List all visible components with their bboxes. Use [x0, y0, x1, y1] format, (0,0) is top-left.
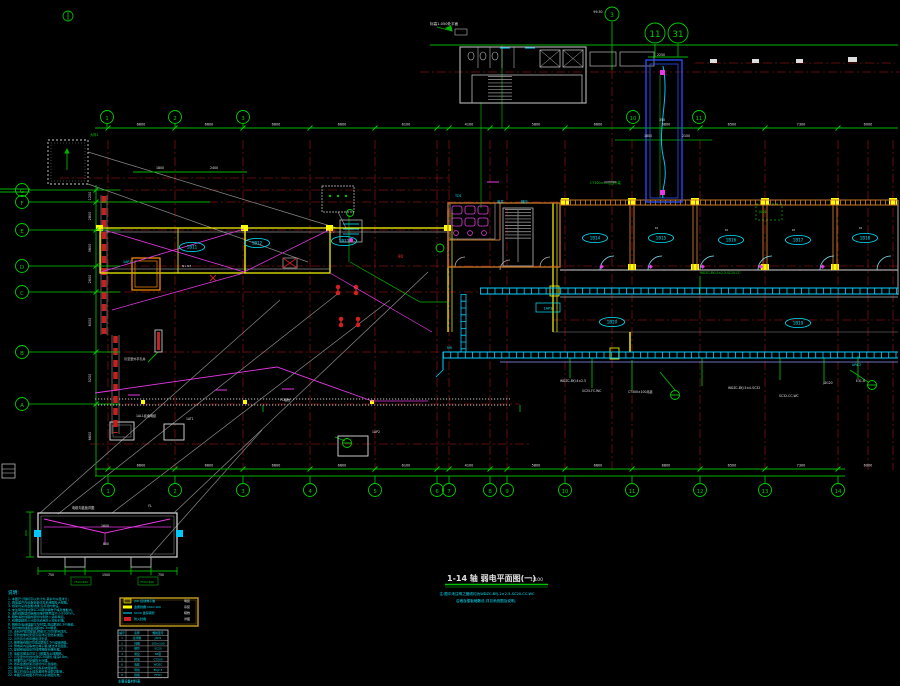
label: 规格型号 — [152, 631, 163, 635]
label: 750 — [158, 573, 164, 577]
label: 11 — [629, 489, 636, 495]
label: 5 — [373, 489, 376, 495]
label: 1800 — [644, 134, 652, 138]
label: 750×300 — [140, 580, 154, 584]
label: 主要设备材料表 — [118, 679, 141, 684]
legend-symbol — [124, 599, 131, 603]
label: 4 — [121, 652, 123, 656]
label: TD1 — [454, 194, 462, 198]
section-cut-symbols — [210, 275, 360, 327]
title-note-2: 沿墙及楼板暗敷设,详见系统图及说明。 — [456, 598, 518, 603]
label: 1B15 — [656, 236, 667, 241]
label: 1B14 — [590, 236, 601, 241]
label: 6600 — [137, 123, 146, 127]
label: C — [20, 291, 24, 297]
label: 10 — [562, 489, 569, 495]
label: 导线 — [134, 668, 140, 672]
label: 4 — [308, 489, 312, 495]
label: 6500 — [728, 464, 737, 468]
label: 1B12 — [252, 241, 263, 246]
label: 350 — [659, 118, 665, 122]
label: 6100 — [402, 123, 411, 127]
label: 说明: — [8, 589, 19, 596]
label: 6600 — [338, 123, 347, 127]
label: 750 — [48, 573, 54, 577]
label: B — [20, 351, 24, 357]
label: E31-6 — [856, 379, 865, 383]
top-wall-markers — [710, 57, 857, 63]
label: 名称 — [134, 631, 140, 635]
equipment-table: 编号名称规格型号1接线箱JXD12线槽100×1003钢管SC204暗盒86型5… — [118, 630, 168, 684]
label: 1AP1 — [123, 260, 131, 264]
label: 3 — [121, 647, 123, 651]
label: 梯厅 — [521, 199, 528, 204]
label: 90 — [330, 229, 336, 234]
label: 1B18 — [860, 236, 871, 241]
door-leaf-dots — [349, 238, 825, 269]
label: 6600 — [88, 432, 92, 441]
label: 桥架 — [134, 657, 140, 661]
label: CT200 — [154, 657, 163, 661]
device-symbols — [343, 210, 877, 448]
label: 钢管 — [134, 647, 140, 651]
label: 1200 — [88, 192, 92, 201]
label: 6600 — [594, 464, 603, 468]
label: 6100 — [402, 464, 411, 468]
label: 6 — [435, 489, 439, 495]
label: WDZC — [154, 663, 163, 667]
label: 6000 — [864, 123, 873, 127]
label: CT100×50沿顶吊装 — [590, 180, 621, 185]
label: 大样1 — [90, 132, 99, 137]
label: AP4-2 — [852, 363, 861, 367]
label: 6800 — [662, 123, 671, 127]
label: 7300 — [797, 123, 806, 127]
label: 明装 — [184, 598, 190, 603]
label: 2400 — [210, 166, 218, 170]
label: 100×100 — [151, 641, 164, 645]
label: 3600 — [88, 244, 92, 253]
label: FTTH — [154, 673, 161, 677]
label: 7300 — [797, 464, 806, 468]
label: td — [792, 228, 795, 232]
label: 线槽 — [134, 641, 140, 645]
label: 3 — [241, 489, 244, 495]
label: SC25-FC.WC — [582, 389, 601, 393]
label: SC32-CC.WC — [779, 394, 799, 398]
distribution-box — [132, 258, 160, 290]
label: D — [20, 265, 24, 271]
label: 1600 — [101, 524, 109, 528]
label: td — [859, 226, 862, 230]
label: 11 — [649, 30, 660, 40]
label: 1B13 — [339, 239, 350, 244]
label: 2100 — [682, 134, 690, 138]
label: 90 — [398, 254, 404, 259]
title-block: 1-14 轴 弱电平面图(一) 1:100 注:图中未注明之管线均为WDZC-B… — [439, 573, 548, 603]
label: A — [20, 403, 24, 409]
label: 6600 — [205, 123, 214, 127]
annotations: 标高1.050处平面电井梯厅TD1CT100×50沿顶吊装JXD1WDZC-BY… — [24, 21, 865, 584]
label: 750×300 — [74, 580, 88, 584]
label: FL — [148, 504, 152, 508]
label: 6000 — [88, 318, 92, 327]
detail-leader-lines — [40, 152, 428, 556]
label: CT300×100吊装 — [628, 389, 653, 394]
label: 2 — [173, 116, 176, 122]
legend-rows: JXD 接线端子箱明装金属线槽 100×100吊装SC20 镀锌钢管暗敷防火封堵… — [123, 598, 190, 621]
label: 1500 — [102, 573, 110, 577]
panel-box-symbol — [283, 258, 297, 268]
label: 1B19 — [793, 321, 804, 326]
label: 6000 — [864, 464, 873, 468]
label: 6600 — [594, 123, 603, 127]
label: 10 — [630, 116, 637, 122]
label: 6600 — [272, 464, 281, 468]
drawing-title: 1-14 轴 弱电平面图(一) — [447, 573, 536, 583]
label: 标高1.050处平面 — [430, 21, 459, 26]
label: 1AP2 — [372, 430, 380, 434]
label: 14 — [835, 489, 842, 495]
label: 8 — [121, 673, 123, 677]
mini-detail-dots — [329, 195, 347, 197]
label: 8 — [488, 489, 492, 495]
label: 电井 — [497, 199, 504, 204]
dimension-ticks — [94, 126, 841, 472]
title-note-1: 注:图中未注明之管线均为WDZC-BYJ-2×2.5-SC20-CC.WC — [439, 591, 535, 596]
label: 11 — [696, 116, 703, 122]
label: 1B20 — [607, 320, 618, 325]
label: 800 — [103, 542, 109, 546]
room-labels: 1B111B121B131B141B151B161B171B181B191B20… — [179, 233, 877, 327]
label: SC20 — [154, 647, 162, 651]
label: 9 — [505, 489, 508, 495]
label: F — [20, 201, 23, 207]
label: 引至室外手孔井 — [124, 356, 146, 361]
label: 5800 — [532, 464, 541, 468]
label: 1B16 — [726, 238, 737, 243]
building-outlines — [2, 29, 898, 567]
label: G — [20, 189, 24, 195]
label: 电缆 — [134, 663, 140, 667]
label: 5200 — [88, 374, 92, 383]
label: 5 — [121, 657, 123, 661]
floor-plan-drawing: JXD 接线端子箱明装金属线槽 100×100吊装SC20 镀锌钢管暗敷防火封堵… — [0, 0, 900, 686]
label: 6600 — [137, 464, 146, 468]
label: 7 — [447, 489, 450, 495]
room-outline-walls — [100, 203, 630, 352]
notes-block: 说明:1. 本图尺寸除标高以米计外,其余均以毫米计。2. 弱电竖井内设备安装详见… — [8, 589, 77, 677]
label: td — [725, 228, 728, 232]
grid-bubbles: 1234567891011121314123GFEDCBA311311011 — [16, 7, 845, 497]
drawing-scale: 1:100 — [530, 577, 543, 583]
label: 13 — [762, 489, 769, 495]
label: JDG20 — [822, 381, 833, 385]
label: 4100 — [465, 464, 474, 468]
label: 12 — [697, 489, 704, 495]
label: E — [20, 229, 24, 235]
label: 1 — [106, 489, 109, 495]
label: td — [655, 226, 658, 230]
label: FC暗敷 — [280, 397, 290, 402]
label: 编号 — [119, 631, 125, 635]
label: N1·N3 — [182, 264, 191, 268]
label: 1B11 — [187, 245, 198, 250]
label: 7 — [121, 668, 123, 672]
label: 2 — [121, 641, 123, 645]
cad-canvas[interactable]: JXD 接线端子箱明装金属线槽 100×100吊装SC20 镀锌钢管暗敷防火封堵… — [0, 0, 900, 686]
trench-end-blocks — [34, 530, 183, 537]
label: 防火封堵 — [134, 616, 146, 621]
label: 2600 — [88, 275, 92, 284]
label: 电缆沟盖板详图 — [72, 505, 94, 510]
label: 3 — [610, 13, 614, 19]
label: 2 — [173, 489, 176, 495]
label: 99.50 — [593, 10, 602, 14]
label: 1AT1 — [186, 417, 194, 421]
door-swing-arcs — [600, 256, 891, 270]
ahu-coil-lines — [343, 224, 359, 234]
label: 1800 — [156, 166, 164, 170]
label: BYJ2.5 — [154, 668, 163, 672]
label: 5800 — [532, 123, 541, 127]
label: JXD1 — [758, 210, 767, 214]
label: 吊装 — [184, 604, 190, 609]
legend-symbol — [124, 617, 131, 621]
label: WDZC-BYJ-4×2.5 — [560, 379, 586, 383]
label: 6800 — [662, 464, 671, 468]
label: 1AP3 — [543, 307, 552, 311]
label: 6600 — [338, 464, 347, 468]
label: 1 — [105, 116, 108, 122]
label: 22. 本图与系统图不符处以系统图为准。 — [8, 672, 63, 677]
label: 终端 — [134, 673, 140, 677]
label: 86型 — [155, 652, 162, 656]
label: 3 — [241, 116, 244, 122]
label: 接线箱 — [133, 636, 142, 640]
label: 1 — [121, 636, 123, 640]
label: WDZC-BYJ-3×2.5-SC20-CC — [700, 271, 741, 275]
label: 暗敷 — [184, 610, 190, 615]
label: 6600 — [272, 123, 281, 127]
label: 1B17 — [793, 238, 804, 243]
label: 金属线槽 100×100 — [134, 604, 161, 609]
label: 1AL1挂墙明装 — [136, 413, 156, 418]
label: 2250 — [657, 53, 665, 57]
label: WDZC-BYJ-5×4-SC32 — [728, 386, 760, 390]
label: SC20 镀锌钢管 — [134, 610, 155, 615]
legend-symbol — [123, 606, 132, 609]
shear-wall-hatch — [101, 195, 160, 434]
label: 900 — [24, 530, 28, 536]
label: 31 — [672, 30, 683, 40]
column-blocks — [96, 198, 897, 404]
label: 4100 — [465, 123, 474, 127]
label: JXD1 — [154, 636, 162, 640]
label: 6600 — [205, 464, 214, 468]
label: 6 — [121, 663, 123, 667]
label: MR — [447, 346, 453, 350]
label: 6500 — [728, 123, 737, 127]
label: 2800 — [88, 212, 92, 221]
label: JXD 接线端子箱 — [133, 598, 155, 603]
riser-shaft — [646, 60, 682, 202]
toilet-fixtures — [452, 206, 488, 235]
label: 详图 — [184, 616, 190, 621]
label: 暗盒 — [134, 652, 140, 656]
